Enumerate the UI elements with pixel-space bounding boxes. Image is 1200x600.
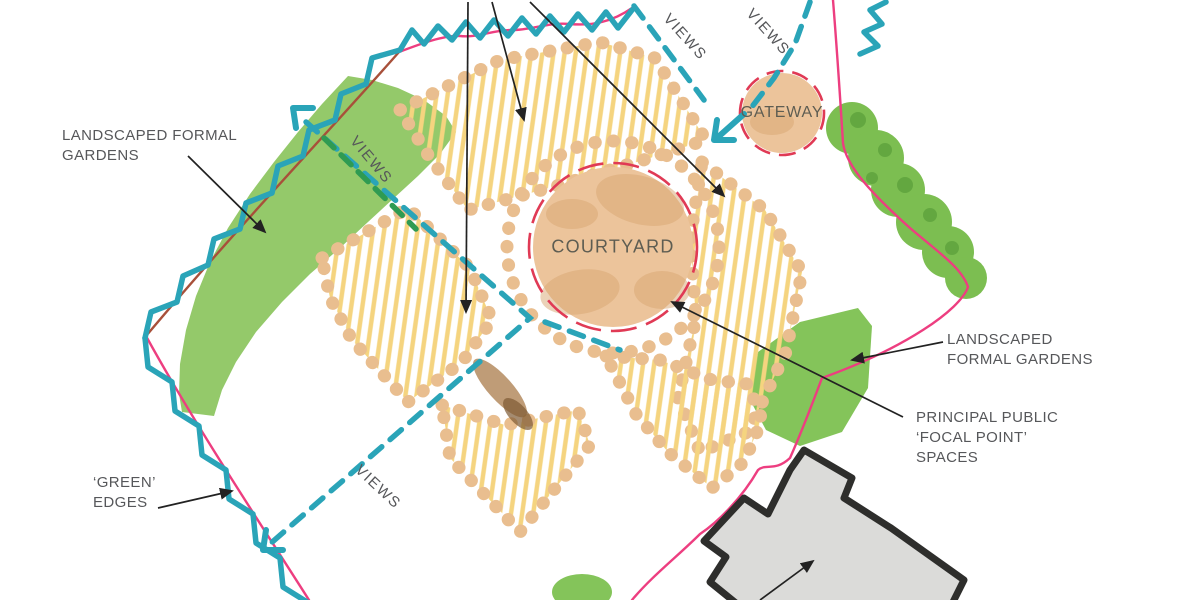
label-courtyard: COURTYARD [551,237,674,258]
label-line: ‘GREEN’ [93,473,156,493]
label-line: FORMAL GARDENS [947,350,1093,370]
label-line: ‘FOCAL POINT’ [916,428,1058,448]
label-line: GARDENS [62,146,237,166]
masterplan-sketch: LANDSCAPED FORMAL GARDENS ‘GREEN’ EDGES … [0,0,1200,600]
label-landscaped-gardens-left: LANDSCAPED FORMAL GARDENS [62,126,237,166]
views-arrowhead-gateway [714,114,744,140]
arrow-green-edges [158,491,232,508]
label-line: LANDSCAPED [947,330,1093,350]
green-blob-south [552,574,612,600]
label-gateway: GATEWAY [741,104,824,122]
label-green-edges: ‘GREEN’ EDGES [93,473,156,513]
hedge-tree-row-east [826,102,987,299]
site-plan-drawing [0,0,1200,600]
label-line: EDGES [93,493,156,513]
building-footprint [704,450,964,600]
label-principal-public-spaces: PRINCIPAL PUBLIC ‘FOCAL POINT’ SPACES [916,408,1058,468]
label-line: SPACES [916,448,1058,468]
label-line: PRINCIPAL PUBLIC [916,408,1058,428]
zigzag-fragment-northeast [860,2,886,54]
label-line: LANDSCAPED FORMAL [62,126,237,146]
label-landscaped-gardens-right: LANDSCAPED FORMAL GARDENS [947,330,1093,370]
